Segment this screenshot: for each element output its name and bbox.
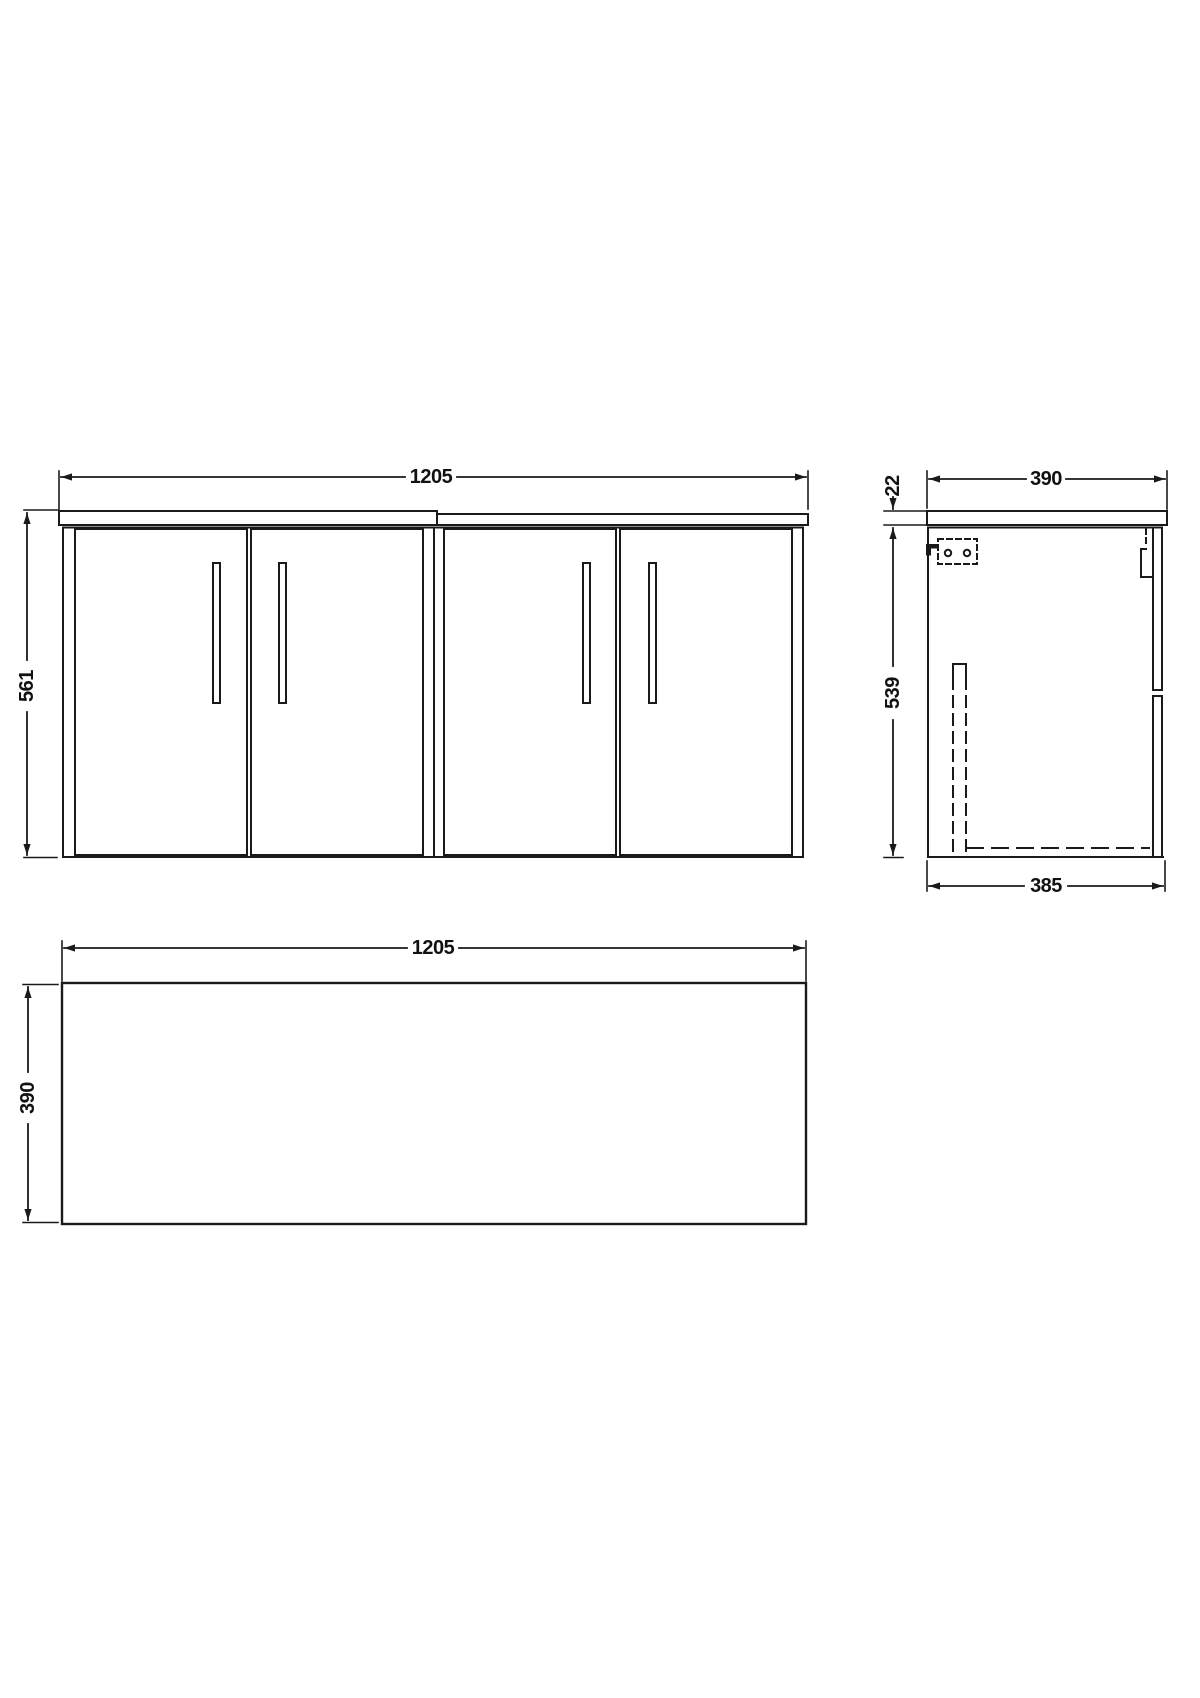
side-height-label: 539	[882, 677, 904, 709]
door-handle-2	[279, 563, 286, 703]
worktop-side	[927, 511, 1167, 525]
door-handle-1	[213, 563, 220, 703]
side-depth-label: 390	[1030, 468, 1062, 490]
plan-depth-label: 390	[17, 1082, 39, 1114]
worktop-thickness-label: 22	[882, 475, 904, 497]
worktop-plan-outline	[62, 983, 806, 1224]
door-handle-4	[649, 563, 656, 703]
worktop-right-section	[429, 514, 808, 525]
side-bottom-depth-label: 385	[1030, 875, 1062, 897]
door-handle-3	[583, 563, 590, 703]
worktop-front	[59, 511, 808, 525]
vanity-unit-dimension-drawing: 1205 561	[0, 0, 1200, 1698]
worktop-left-section	[59, 511, 437, 525]
front-height-label: 561	[16, 670, 38, 702]
plan-width-label: 1205	[412, 937, 455, 959]
front-width-label: 1205	[410, 466, 453, 488]
cabinet-front	[63, 528, 803, 858]
technical-drawing-page: 1205 561	[0, 0, 1200, 1698]
front-view: 1205 561	[16, 466, 808, 858]
